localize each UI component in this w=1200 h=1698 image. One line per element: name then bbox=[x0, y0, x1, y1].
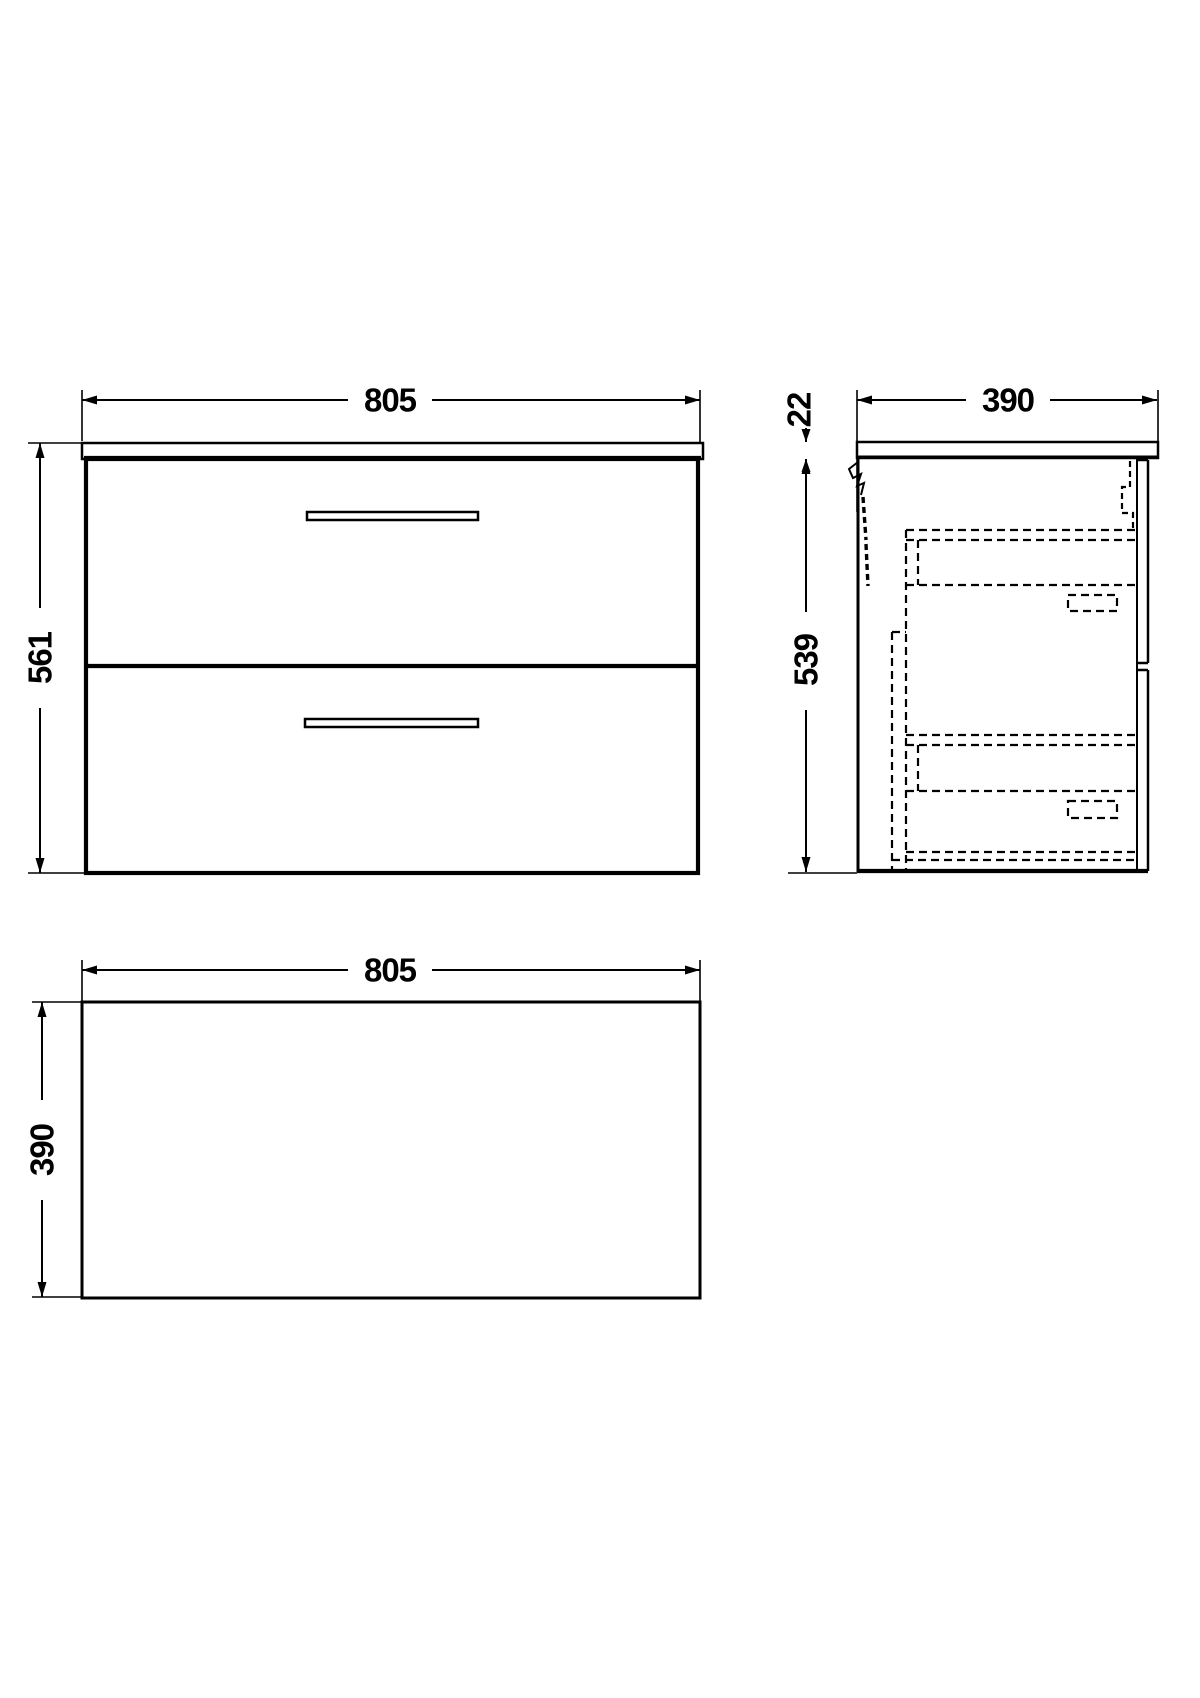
front-drawer2-handle bbox=[305, 719, 478, 727]
side-countertop-thickness-label: 22 bbox=[781, 392, 818, 427]
side-drawer-fronts bbox=[1137, 460, 1148, 871]
dim-arrow bbox=[38, 1282, 47, 1297]
dim-arrow bbox=[82, 966, 97, 975]
side-body-height-dimension: 539 bbox=[787, 459, 857, 873]
dim-arrow bbox=[82, 396, 97, 405]
side-view: 390 22 539 bbox=[781, 381, 1159, 873]
plan-depth-label: 390 bbox=[24, 1124, 61, 1176]
front-countertop bbox=[82, 443, 703, 459]
technical-drawing-canvas: 805 561 bbox=[0, 0, 1200, 1698]
side-drawer-internals bbox=[892, 461, 1137, 869]
dim-arrow bbox=[802, 429, 811, 442]
side-drawer1-handle-hidden bbox=[1068, 595, 1117, 611]
dim-arrow bbox=[38, 1002, 47, 1017]
dim-arrow bbox=[685, 396, 700, 405]
dim-arrow bbox=[802, 857, 811, 872]
plan-depth-dimension: 390 bbox=[23, 1002, 82, 1297]
side-countertop-thickness-dimension: 22 bbox=[781, 392, 818, 472]
front-cabinet bbox=[86, 459, 698, 873]
dim-arrow bbox=[1142, 396, 1157, 405]
dim-arrow bbox=[36, 858, 45, 873]
dim-arrow bbox=[685, 966, 700, 975]
dim-arrow bbox=[857, 396, 872, 405]
vanity-unit-technical-drawing: 805 561 bbox=[0, 0, 1200, 1698]
plan-view: 805 390 bbox=[23, 951, 700, 1298]
dim-arrow bbox=[36, 443, 45, 458]
front-view: 805 561 bbox=[21, 381, 703, 873]
plan-width-label: 805 bbox=[364, 952, 417, 989]
plan-width-dimension: 805 bbox=[82, 951, 700, 1002]
dim-arrow bbox=[802, 459, 811, 474]
side-cabinet bbox=[857, 459, 1148, 872]
plan-countertop-outline bbox=[82, 1002, 700, 1298]
front-height-label: 561 bbox=[22, 631, 59, 684]
front-width-label: 805 bbox=[364, 382, 417, 419]
front-height-dimension: 561 bbox=[21, 443, 86, 873]
side-drawer2-handle-hidden bbox=[1068, 801, 1117, 818]
side-body-height-label: 539 bbox=[788, 633, 825, 686]
side-countertop bbox=[857, 442, 1158, 458]
front-drawer1-handle bbox=[307, 512, 478, 520]
side-depth-label: 390 bbox=[982, 382, 1034, 419]
